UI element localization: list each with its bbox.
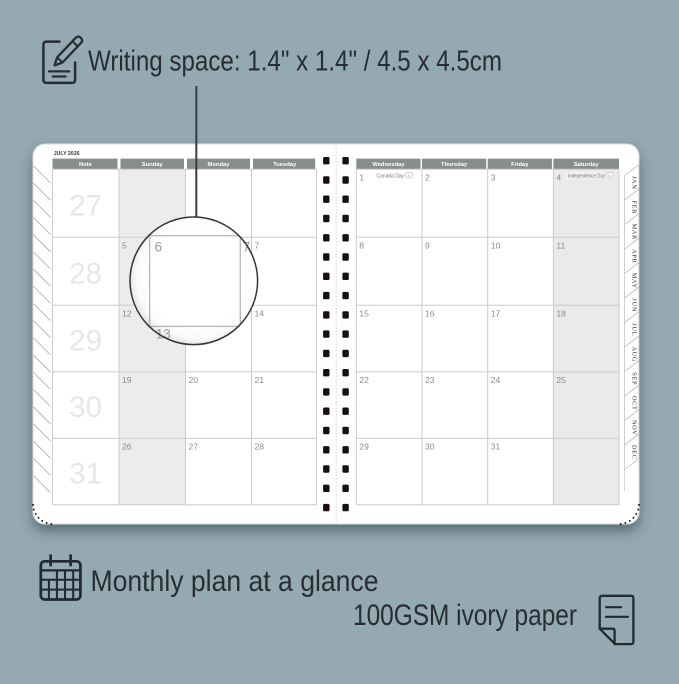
svg-text:Thursday: Thursday: [441, 162, 468, 168]
svg-text:19: 19: [122, 375, 132, 385]
svg-text:Saturday: Saturday: [574, 162, 600, 168]
svg-text:10: 10: [491, 241, 501, 251]
svg-text:30: 30: [69, 391, 102, 424]
svg-text:17: 17: [491, 309, 501, 319]
svg-text:7: 7: [255, 241, 260, 251]
svg-text:Wednesday: Wednesday: [372, 162, 405, 168]
svg-text:4: 4: [556, 173, 561, 183]
svg-text:Note: Note: [79, 162, 93, 168]
svg-text:21: 21: [255, 375, 265, 385]
svg-text:2: 2: [425, 173, 430, 183]
svg-text:OCT: OCT: [631, 396, 638, 411]
svg-text:27: 27: [189, 442, 199, 452]
svg-text:28: 28: [255, 442, 265, 452]
svg-text:Friday: Friday: [511, 162, 529, 168]
svg-text:28: 28: [69, 257, 102, 290]
svg-text:29: 29: [359, 442, 369, 452]
svg-text:JAN: JAN: [631, 176, 638, 190]
svg-text:Monday: Monday: [208, 162, 231, 168]
svg-text:Tuesday: Tuesday: [273, 162, 297, 168]
svg-text:APR: APR: [631, 249, 638, 263]
svg-text:23: 23: [425, 375, 435, 385]
svg-text:8: 8: [359, 241, 364, 251]
svg-text:24: 24: [491, 375, 501, 385]
svg-text:Monthly plan at a glance: Monthly plan at a glance: [91, 565, 379, 598]
svg-text:Canada Day: Canada Day: [377, 174, 405, 180]
svg-text:31: 31: [69, 458, 102, 491]
svg-text:15: 15: [359, 309, 369, 319]
svg-text:20: 20: [189, 375, 199, 385]
svg-text:MAR: MAR: [631, 224, 638, 240]
svg-text:DEC: DEC: [631, 445, 638, 460]
svg-text:5: 5: [122, 241, 127, 251]
svg-text:Writing space: 1.4" x 1.4" / 4: Writing space: 1.4" x 1.4" / 4.5 x 4.5cm: [88, 46, 502, 78]
svg-text:1: 1: [359, 173, 364, 183]
svg-text:SEP: SEP: [631, 372, 638, 385]
svg-text:29: 29: [69, 325, 102, 358]
svg-text:14: 14: [255, 309, 265, 319]
svg-text:100GSM ivory paper: 100GSM ivory paper: [353, 599, 577, 632]
svg-text:16: 16: [425, 309, 435, 319]
svg-text:18: 18: [556, 309, 566, 319]
svg-text:31: 31: [491, 442, 501, 452]
svg-text:30: 30: [425, 442, 435, 452]
svg-text:FEB: FEB: [631, 200, 638, 214]
svg-text:11: 11: [556, 241, 565, 251]
svg-text:NOV: NOV: [631, 420, 638, 436]
svg-text:27: 27: [69, 189, 102, 222]
svg-text:22: 22: [359, 375, 369, 385]
svg-text:12: 12: [122, 309, 132, 319]
svg-text:MAY: MAY: [631, 273, 638, 289]
svg-text:AUG: AUG: [631, 346, 638, 362]
svg-text:25: 25: [556, 375, 566, 385]
svg-text:Sunday: Sunday: [142, 162, 164, 168]
svg-text:JUL: JUL: [631, 323, 638, 336]
svg-text:JULY 2026: JULY 2026: [54, 151, 80, 157]
svg-text:3: 3: [491, 173, 496, 183]
svg-text:26: 26: [122, 442, 132, 452]
svg-text:JUN: JUN: [631, 298, 638, 312]
svg-text:9: 9: [425, 241, 430, 251]
svg-text:Independence Day: Independence Day: [568, 174, 605, 180]
